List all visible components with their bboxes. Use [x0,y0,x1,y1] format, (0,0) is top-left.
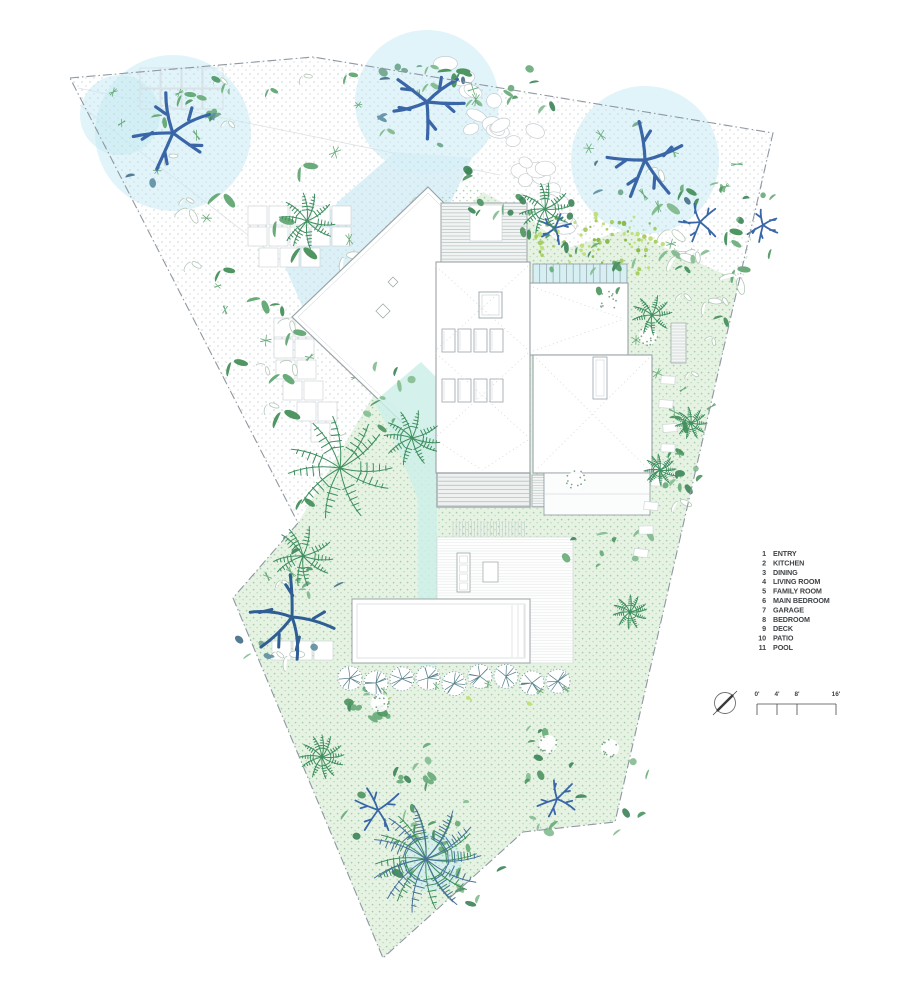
stepping-stone [663,424,678,433]
legend-item-number: 11 [759,643,767,652]
scale-tick-label: 16' [832,691,841,698]
legend-item-label: DINING [773,568,798,577]
skylight [479,292,502,318]
legend-item-number: 8 [762,615,766,624]
stepping-stone [661,376,675,385]
roof-slot [593,357,607,399]
legend-item-label: GARAGE [773,605,804,614]
plan-annotations: 1 ENTRY 2 KITCHEN 3 DINING 4 LIVING ROOM… [713,549,841,715]
scale-tick-label: 0' [754,691,760,698]
legend-item-number: 6 [762,596,766,605]
legend-item-number: 5 [762,587,766,596]
legend-item-number: 10 [758,634,766,643]
scale-bar: 0' 4' 8' 16' [713,691,841,715]
legend-item-number: 3 [762,568,766,577]
legend-item-number: 2 [762,558,766,567]
legend-item-label: BEDROOM [773,615,810,624]
legend-item-label: MAIN BEDROOM [773,596,830,605]
stepping-stone [661,444,675,452]
scale-tick-label: 8' [794,691,800,698]
bedroom-wing-roof [533,355,652,473]
north-arrow-line [713,691,737,715]
patio-island [457,553,470,592]
stepping-stone [639,526,653,534]
legend-item-number: 7 [762,605,766,614]
plan-layers [70,30,777,958]
legend-item-label: PATIO [773,634,794,643]
site-plan-drawing: 1 ENTRY 2 KITCHEN 3 DINING 4 LIVING ROOM… [0,0,920,997]
scale-tick-label: 4' [774,691,780,698]
legend-item-label: LIVING ROOM [773,577,820,586]
stepping-stone [659,400,674,409]
legend-item-label: POOL [773,643,794,652]
legend-item-number: 4 [762,577,766,586]
legend-item-label: DECK [773,624,794,633]
stair [532,475,544,507]
patio-table [483,562,498,582]
legend-item-label: FAMILY ROOM [773,587,822,596]
stepping-stone [644,502,659,511]
pool [352,599,530,663]
site-plan-page: 1 ENTRY 2 KITCHEN 3 DINING 4 LIVING ROOM… [0,0,920,997]
legend-item-number: 1 [762,549,766,558]
legend-item-label: ENTRY [773,549,797,558]
legend: 1 ENTRY 2 KITCHEN 3 DINING 4 LIVING ROOM… [758,549,830,652]
legend-item-label: KITCHEN [773,558,804,567]
legend-item-number: 9 [762,624,766,633]
